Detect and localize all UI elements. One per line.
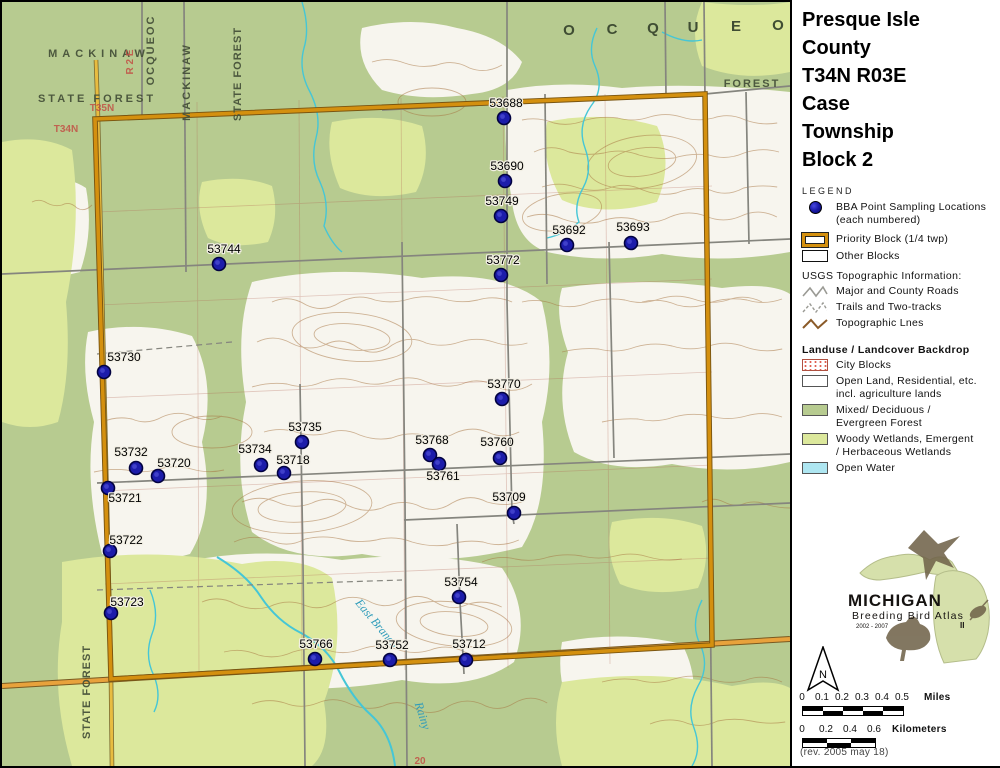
bba-point-label: 53732 (114, 445, 148, 459)
bba-point-highlight (455, 593, 460, 598)
legend-item-trails: Trails and Two-tracks (802, 301, 1000, 314)
revision-note: (rev. 2005 may 18) (800, 747, 889, 758)
legend-item-major-roads: Major and County Roads (802, 285, 1000, 298)
bba-point-label: 53721 (108, 491, 142, 505)
legend-item-mixed-forest: Mixed/ Deciduous / Evergreen Forest (802, 404, 1000, 430)
bba-point-highlight (498, 395, 503, 400)
scale-tick: 0.3 (855, 692, 869, 703)
map-area[interactable]: MACKINAWSTATE FORESTOCQUEOCMACKINAWSTATE… (0, 0, 792, 768)
bba-point-highlight (386, 656, 391, 661)
north-label: N (819, 669, 827, 681)
bba-point-icon (809, 201, 822, 214)
legend-item-woody-wetlands: Woody Wetlands, Emergent / Herbaceous We… (802, 433, 1000, 459)
legend-label: Trails and Two-tracks (836, 301, 942, 314)
legend-item-bba-points: BBA Point Sampling Locations (each numbe… (802, 201, 1000, 227)
bba-point-label: 53692 (552, 223, 586, 237)
legend-item-city-blocks: City Blocks (802, 359, 1000, 372)
scale-tick: 0 (799, 724, 805, 735)
legend-label: Topographic Lnes (836, 317, 924, 330)
scale-tick: 0.2 (835, 692, 849, 703)
bba-point-highlight (100, 368, 105, 373)
bba-point-label: 53688 (489, 96, 523, 110)
scale-tick: 0.4 (843, 724, 857, 735)
map-area-label: R 2 E (125, 49, 136, 74)
usgs-heading: USGS Topographic Information: (802, 270, 1000, 282)
woody-wetlands-swatch (802, 433, 828, 445)
map-area-label: STATE FOREST (232, 27, 244, 121)
bba-point-label: 53772 (486, 253, 520, 267)
map-area-label: T35N (90, 103, 114, 114)
quail-icon (886, 616, 930, 661)
bba-point-highlight (311, 655, 316, 660)
scale-tick: 0 (799, 692, 805, 703)
landuse-heading: Landuse / Landcover Backdrop (802, 344, 1000, 356)
legend-label: Open Water (836, 462, 895, 475)
bba-point-highlight (257, 461, 262, 466)
mbba-logo: MICHIGAN Breeding Bird Atlas 2002 - 2007… (840, 528, 998, 670)
legend-label: Major and County Roads (836, 285, 959, 298)
title-line: County (802, 34, 998, 62)
legend-heading: LEGEND (802, 186, 1000, 196)
bba-point-label: 53690 (490, 159, 524, 173)
map-area-label: Q (647, 20, 659, 37)
title-line: Block 2 (802, 146, 998, 174)
bba-point-label: 53754 (444, 575, 478, 589)
scale-tick: 0.6 (867, 724, 881, 735)
bba-point-label: 53766 (299, 637, 333, 651)
logo-name: MICHIGAN (848, 591, 942, 610)
other-blocks-icon (802, 250, 828, 262)
legend-item-topo-lines: Topographic Lnes (802, 317, 1000, 330)
bba-point-label: 53744 (207, 242, 241, 256)
map-title: Presque Isle County T34N R03E Case Towns… (792, 0, 1000, 174)
bba-point-label: 53770 (487, 377, 521, 391)
logo-subtitle: Breeding Bird Atlas (852, 610, 964, 622)
bba-point-label: 53720 (157, 456, 191, 470)
trails-icon (802, 301, 828, 314)
map-area-label: T34N (54, 124, 78, 135)
bba-point-label: 53752 (375, 638, 409, 652)
logo-years: 2002 - 2007 (856, 624, 889, 630)
map-area-label: FOREST (724, 78, 781, 90)
city-blocks-swatch (802, 359, 828, 371)
bba-point-highlight (627, 239, 632, 244)
bba-point-highlight (106, 547, 111, 552)
map-area-label: OCQUEOC (145, 15, 157, 86)
bba-point-label: 53723 (110, 595, 144, 609)
map-area-label: O (563, 22, 575, 39)
bba-point-label: 53709 (492, 490, 526, 504)
mixed-forest-swatch (802, 404, 828, 416)
bba-point-highlight (462, 656, 467, 661)
legend-label: Woody Wetlands, Emergent / Herbaceous We… (836, 433, 974, 459)
legend-item-priority-block: Priority Block (1/4 twp) (802, 233, 1000, 247)
title-line: Case (802, 90, 998, 118)
legend-label: Other Blocks (836, 250, 900, 263)
title-line: Township (802, 118, 998, 146)
legend-item-open-water: Open Water (802, 462, 1000, 475)
legend-label: Mixed/ Deciduous / Evergreen Forest (836, 404, 931, 430)
bba-point-highlight (132, 464, 137, 469)
bba-point-highlight (154, 472, 159, 477)
legend-label: Open Land, Residential, etc. incl. agric… (836, 375, 977, 401)
legend-label: Priority Block (1/4 twp) (836, 233, 948, 246)
bba-point-highlight (280, 469, 285, 474)
bba-point-label: 53712 (452, 637, 486, 651)
bba-point-label: 53735 (288, 420, 322, 434)
legend-item-open-land: Open Land, Residential, etc. incl. agric… (802, 375, 1000, 401)
major-roads-icon (802, 285, 828, 298)
scale-unit: Kilometers (892, 724, 947, 735)
scale-tick: 0.4 (875, 692, 889, 703)
map-area-label: STATE FOREST (81, 645, 93, 739)
bba-point-highlight (426, 451, 431, 456)
bba-point-label: 53718 (276, 453, 310, 467)
topo-lines-icon (802, 317, 828, 330)
bba-point-highlight (496, 454, 501, 459)
scale-unit: Miles (924, 692, 951, 703)
scale-tick: 0.2 (819, 724, 833, 735)
map-area-label: MACKINAW (181, 43, 193, 121)
miles-scale-bar (802, 706, 904, 716)
bba-point-label: 53761 (426, 469, 460, 483)
open-land-swatch (802, 375, 828, 387)
logo-numeral: II (960, 621, 964, 630)
priority-block-icon (802, 233, 828, 247)
bba-point-highlight (497, 212, 502, 217)
bba-point-highlight (298, 438, 303, 443)
title-line: Presque Isle (802, 6, 998, 34)
legend-label: City Blocks (836, 359, 891, 372)
scale-tick: 0.1 (815, 692, 829, 703)
bba-point-label: 53693 (616, 220, 650, 234)
map-area-label: E (731, 18, 741, 35)
bba-point-highlight (497, 271, 502, 276)
bba-point-highlight (107, 609, 112, 614)
map-area-label: 20 (414, 756, 426, 766)
legend-label: BBA Point Sampling Locations (each numbe… (836, 201, 986, 227)
bba-point-highlight (510, 509, 515, 514)
km-scale-labels: 0 0.2 0.4 0.6 Kilometers (796, 724, 996, 736)
open-water-swatch (802, 462, 828, 474)
topographic-map[interactable]: MACKINAWSTATE FORESTOCQUEOCMACKINAWSTATE… (2, 2, 790, 766)
bba-point-label: 53730 (107, 350, 141, 364)
bba-point-highlight (215, 260, 220, 265)
map-area-label: C (607, 21, 618, 38)
map-area-label: O (772, 17, 784, 34)
bba-point-label: 53722 (109, 533, 143, 547)
bba-point-label: 53760 (480, 435, 514, 449)
bba-point-highlight (435, 460, 440, 465)
bba-point-highlight (501, 177, 506, 182)
bba-point-highlight (500, 114, 505, 119)
bba-point-label: 53749 (485, 194, 519, 208)
bba-point-highlight (104, 484, 109, 489)
bba-point-label: 53734 (238, 442, 272, 456)
bba-point-highlight (563, 241, 568, 246)
map-document: MACKINAWSTATE FORESTOCQUEOCMACKINAWSTATE… (0, 0, 1000, 768)
legend-item-other-blocks: Other Blocks (802, 250, 1000, 263)
map-area-label: U (688, 19, 699, 36)
bba-point-label: 53768 (415, 433, 449, 447)
north-arrow: N (806, 646, 840, 692)
title-line: T34N R03E (802, 62, 998, 90)
scale-tick: 0.5 (895, 692, 909, 703)
miles-scale-labels: 0 0.1 0.2 0.3 0.4 0.5 Miles (796, 692, 996, 704)
